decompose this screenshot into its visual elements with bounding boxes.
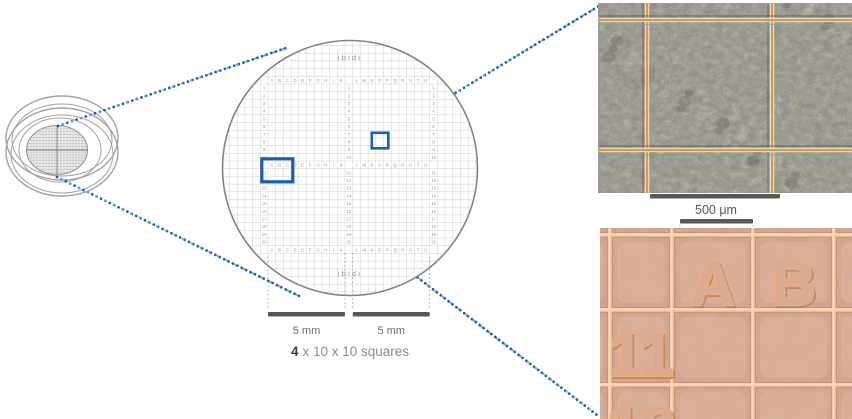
grid-square bbox=[760, 317, 827, 378]
grid-col-letter: U bbox=[424, 247, 427, 252]
grid-col-letter: P bbox=[386, 163, 389, 168]
grid-col-letter: R bbox=[401, 78, 404, 83]
cell-blob bbox=[839, 40, 846, 45]
grid-col-letter: T bbox=[417, 163, 420, 168]
cell-blob bbox=[803, 8, 814, 17]
cell-blob bbox=[627, 62, 634, 67]
grid-col-letter: H bbox=[324, 247, 327, 252]
grid-row-number: 16 bbox=[431, 209, 436, 214]
cell-blob bbox=[685, 90, 694, 97]
grid-col-letter: H bbox=[324, 163, 327, 168]
grid-square bbox=[552, 317, 603, 378]
micrograph-cells bbox=[597, 2, 852, 194]
grid-col-letter: T bbox=[417, 78, 420, 83]
grid-col-letter: S bbox=[409, 78, 412, 83]
grid-col-letter: I bbox=[333, 247, 334, 252]
cell-blob bbox=[809, 2, 816, 7]
cell-blob bbox=[747, 156, 760, 167]
grid-row-number: 17 bbox=[431, 217, 436, 222]
grid-row-number: 20 bbox=[347, 240, 352, 245]
scale-bar-right bbox=[353, 312, 430, 317]
cell-blob bbox=[783, 2, 792, 9]
engraved-number: 11 bbox=[608, 321, 674, 390]
grid-square bbox=[841, 187, 852, 228]
grid-row-number: 14 bbox=[347, 193, 352, 198]
grid-square bbox=[841, 317, 852, 378]
grid-col-letter: C bbox=[286, 163, 289, 168]
grid-col-letter: A bbox=[270, 78, 273, 83]
grid-row-number: 16 bbox=[262, 209, 267, 214]
grid-row-number: 15 bbox=[262, 201, 267, 206]
cell-blob bbox=[791, 172, 800, 179]
scale-label-right: 5 mm bbox=[377, 325, 405, 337]
cell-blob bbox=[629, 52, 640, 61]
grid-col-letter: R bbox=[401, 247, 404, 252]
grid-row-number: 13 bbox=[262, 186, 267, 191]
cell-blob bbox=[785, 178, 798, 189]
grid-col-letter: R bbox=[401, 163, 404, 168]
grid-row-number: 13 bbox=[347, 186, 352, 191]
cell-blob bbox=[679, 96, 692, 107]
grid-col-letter: S bbox=[409, 247, 412, 252]
grid-row-number: 10 bbox=[431, 155, 436, 160]
grid-col-letter: P bbox=[386, 247, 389, 252]
grid-col-letter: U bbox=[424, 163, 427, 168]
engraved-number: 12 bbox=[607, 395, 676, 419]
scale-bar-grid bbox=[680, 219, 753, 224]
grid-col-letter: S bbox=[409, 163, 412, 168]
cell-blob bbox=[841, 30, 852, 39]
cell-blob bbox=[697, 112, 708, 121]
grid-row-number: 15 bbox=[431, 201, 436, 206]
grid-col-letter: T bbox=[417, 247, 420, 252]
cell-blob bbox=[609, 46, 618, 53]
grid-row-number: 11 bbox=[431, 170, 436, 175]
grid-col-letter: M bbox=[362, 78, 366, 83]
grid-col-letter: E bbox=[301, 247, 304, 252]
grid-square bbox=[617, 187, 665, 228]
grid-col-letter: K bbox=[340, 163, 343, 168]
grid-col-letter: C bbox=[286, 247, 289, 252]
grid-square bbox=[679, 317, 746, 378]
grid-col-letter: E bbox=[301, 163, 304, 168]
grid-col-letter: I bbox=[333, 163, 334, 168]
grid-col-letter: K bbox=[340, 247, 343, 252]
grid-col-letter: D bbox=[293, 247, 296, 252]
grid-square bbox=[617, 242, 665, 303]
grid-row-number: 14 bbox=[262, 193, 267, 198]
grid-row-number: 17 bbox=[347, 217, 352, 222]
scale-bar-cells bbox=[650, 194, 780, 199]
grid-col-letter: A bbox=[270, 247, 273, 252]
scale-label-500um: 500 μm bbox=[695, 203, 737, 217]
grid-row-number: 20 bbox=[431, 240, 436, 245]
grid-row-number: 18 bbox=[347, 224, 352, 229]
grid-col-letter: P bbox=[386, 78, 389, 83]
grid-col-letter: B bbox=[278, 163, 281, 168]
grid-square bbox=[552, 242, 603, 303]
cell-blob bbox=[695, 122, 702, 127]
cell-blob bbox=[703, 106, 710, 111]
grid-row-number: 13 bbox=[431, 186, 436, 191]
engraved-letter: B bbox=[771, 250, 816, 319]
brand-label-bottom: ibidi bbox=[338, 269, 362, 278]
grid-col-letter: M bbox=[362, 163, 366, 168]
cell-blob bbox=[715, 128, 724, 135]
figure-canvas: ABCDEFGHIKLMNOPQRSTUABCDEFGHIKLMNOPQRSTU… bbox=[0, 0, 852, 419]
grid-row-number: 19 bbox=[262, 232, 267, 237]
grid-row-number: 18 bbox=[262, 224, 267, 229]
cell-blob bbox=[611, 36, 624, 47]
grid-col-letter: K bbox=[340, 78, 343, 83]
grid-col-letter: N bbox=[370, 247, 373, 252]
grid-square bbox=[760, 187, 827, 228]
grid-square bbox=[841, 392, 852, 419]
scale-bar-left bbox=[268, 312, 345, 317]
squares-caption: 4x 10 x 10 squares bbox=[291, 344, 409, 359]
grid-col-letter: F bbox=[309, 163, 312, 168]
grid-row-number: 12 bbox=[347, 178, 352, 183]
grid-square bbox=[552, 187, 603, 228]
grid-col-letter: H bbox=[324, 78, 327, 83]
grid-row-number: 18 bbox=[431, 224, 436, 229]
grid-col-letter: A bbox=[270, 163, 273, 168]
grid-col-letter: I bbox=[333, 78, 334, 83]
grid-col-letter: D bbox=[293, 78, 296, 83]
grid-row-number: 20 bbox=[262, 240, 267, 245]
micrograph-scale: 500 μm bbox=[650, 187, 780, 231]
cell-blob bbox=[665, 84, 672, 89]
grid-square bbox=[679, 392, 746, 419]
cell-blob bbox=[677, 106, 686, 113]
engraved-letter: A bbox=[690, 250, 735, 319]
grid-col-letter: N bbox=[370, 78, 373, 83]
grid-col-letter: N bbox=[370, 163, 373, 168]
petri-dish-icon bbox=[6, 96, 118, 196]
grid-row-number: 11 bbox=[347, 170, 352, 175]
cell-blob bbox=[717, 118, 730, 129]
grid-row-number: 19 bbox=[347, 232, 352, 237]
cell-blob bbox=[735, 134, 746, 143]
grid-row-number: 15 bbox=[347, 201, 352, 206]
scale-label-left: 5 mm bbox=[293, 325, 321, 337]
cell-blob bbox=[659, 90, 670, 99]
grid-col-letter: B bbox=[278, 247, 281, 252]
figure-svg: ABCDEFGHIKLMNOPQRSTUABCDEFGHIKLMNOPQRSTU… bbox=[0, 0, 852, 419]
grid-col-letter: F bbox=[309, 247, 312, 252]
grid-row-number: 17 bbox=[262, 217, 267, 222]
grid-col-letter: F bbox=[309, 78, 312, 83]
grid-row-number: 16 bbox=[347, 209, 352, 214]
grid-row-number: 10 bbox=[347, 155, 352, 160]
grid-diagram: ABCDEFGHIKLMNOPQRSTUABCDEFGHIKLMNOPQRSTU… bbox=[222, 38, 478, 359]
grid-square bbox=[760, 392, 827, 419]
grid-col-letter: C bbox=[286, 78, 289, 83]
brand-label-top: ibidi bbox=[338, 53, 362, 62]
grid-row-number: 19 bbox=[431, 232, 436, 237]
grid-col-letter: M bbox=[362, 247, 366, 252]
grid-row-number: 12 bbox=[431, 178, 436, 183]
grid-col-letter: U bbox=[424, 78, 427, 83]
grid-col-letter: B bbox=[278, 78, 281, 83]
cell-blob bbox=[603, 52, 616, 63]
grid-row-number: 14 bbox=[431, 193, 436, 198]
grid-col-letter: E bbox=[301, 78, 304, 83]
